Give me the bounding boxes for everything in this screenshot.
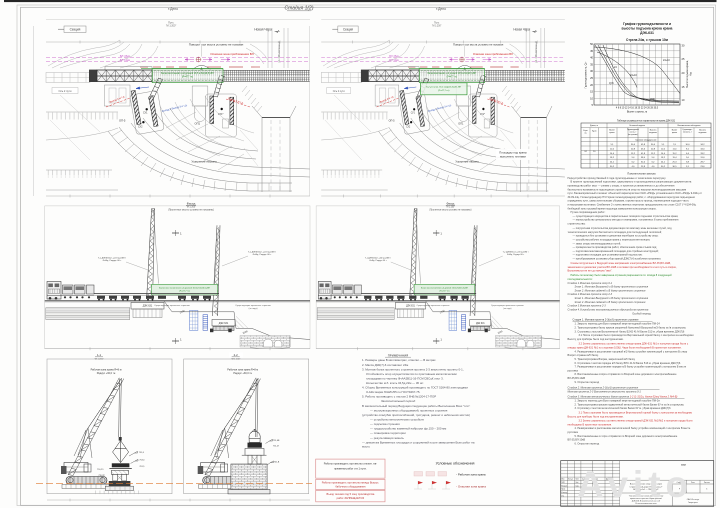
svg-text:Фасад: Фасад <box>187 202 196 206</box>
svg-text:751,6: 751,6 <box>139 452 145 454</box>
svg-text:2. Масса ДЭК(7)-6 составляе: 2. Масса ДЭК(7)-6 составляет 24м <box>362 363 408 367</box>
svg-text:Avito: Avito <box>577 464 693 505</box>
svg-text:"М 1:200": "М 1:200" <box>94 358 104 360</box>
svg-text:Утв: Утв <box>561 495 564 497</box>
svg-text:мосту: мосту <box>362 445 370 449</box>
svg-text:— демонтаж Временных площад: — демонтаж Временных площадок и сооружен… <box>362 440 475 444</box>
svg-text:— устройство металлических: — устройство металлических устройств <box>370 417 424 421</box>
svg-text:Балки восстановления к-й длино: Балки восстановления к-й длиной 16,5м Б2… <box>159 287 211 290</box>
svg-text:Въезд техники под 5 зону: Въезд техники под 5 зону производства <box>326 492 374 496</box>
svg-text:Кол.уч: Кол.уч <box>568 479 573 481</box>
svg-text:741,В: 741,В <box>274 462 280 464</box>
svg-text:4. Разворачивал в расстановке: 4. Разворачивал в расстановке металличес… <box>575 426 691 430</box>
svg-text:7. Разворачивал в расстановке: 7. Разворачивал в расстановке порядке в/… <box>575 364 687 368</box>
svg-text:5. Восстановленные в торге от: 5. Восстановленные в торге отправили по … <box>575 434 678 438</box>
svg-text:(по гранич.): (по гранич.) <box>628 134 639 136</box>
svg-text:4. Сборку Временных констру: 4. Сборку Временных конструкций производ… <box>362 385 468 389</box>
svg-text:(Пролетные мосты условно не по: (Пролетные мосты условно не показаны) <box>168 209 214 212</box>
svg-text:— планировка территории: — планировка территории <box>370 431 406 435</box>
svg-text:Гусек: Гусек <box>592 131 597 133</box>
svg-text:Новая Чара: Новая Чара <box>254 27 272 31</box>
svg-text:ДЭК: ДЭК <box>650 98 655 101</box>
svg-text:Особый период: Особый период <box>632 312 651 316</box>
svg-text:подъема: подъема <box>649 132 658 134</box>
svg-text:ДЭК-631: ДЭК-631 <box>640 31 654 35</box>
svg-text:Вспомогательный подъем: Вспомогательный подъем <box>678 124 702 127</box>
svg-text:5. Работы производить с ли: 5. Работы производить с листом 2 ФчВ.№12… <box>362 394 436 398</box>
svg-text:Q=6: Q=6 <box>609 82 614 85</box>
svg-text:ОП-5: ОП-5 <box>119 118 126 122</box>
svg-text:Заключительный период: Заключительный период <box>381 399 416 403</box>
svg-text:— переустройство центрального: — переустройство центрального метода и п… <box>573 217 679 221</box>
svg-text:Балки восстановл. к-й длиной 1: Балки восстановл. к-й длиной 16,5 м Б2(1… <box>161 72 214 75</box>
svg-text:Основной подъем: Основной подъем <box>629 124 646 127</box>
svg-text:ОП1: ОП1 <box>195 122 201 126</box>
svg-text:— трудоустройство каменной: — трудоустройство каменной наброски фр.1… <box>370 426 446 430</box>
svg-text:площадкам по чертежу ФчАА2В: площадкам по чертежу ФчАА2В11-16-ПОУ/СВС… <box>366 376 444 380</box>
svg-text:ДЭК 631: ДЭК 631 <box>219 322 229 325</box>
svg-text:Поворот оси моста условно не п: Поворот оси моста условно не показан <box>189 42 244 46</box>
svg-text:Монтаж пролета 2-3 Выполняется: Монтаж пролета 2-3 Выполняется аналогичн… <box>568 389 642 393</box>
svg-text:761,5: 761,5 <box>139 466 145 468</box>
svg-text:Существующие пролетные строени: Существующие пролетные строения <box>154 305 190 307</box>
svg-text:Разраб: Разраб <box>561 485 567 487</box>
svg-text:т.Депо: т.Депо <box>168 7 178 11</box>
svg-text:- Рабочая зона крана: - Рабочая зона крана <box>456 473 486 477</box>
svg-text:6: 6 <box>706 489 707 491</box>
svg-text:Пров: Пров <box>561 489 565 491</box>
svg-text:(устройство опалубки приспос: (устройство опалубки приспособлений, тро… <box>362 413 470 417</box>
svg-text:Высоту для приборы были под ин: Высоту для приборы были под инструментам… <box>568 337 624 341</box>
svg-text:В заключительный период Вед: В заключительный период Ведущая следующи… <box>362 404 471 408</box>
svg-text:24+10: 24+10 <box>630 74 637 77</box>
svg-text:751,6В: 751,6В <box>273 440 280 442</box>
svg-text:Т-к ДЭК631м L=24 Q=24М т: Т-к ДЭК631м L=24 Q=24М т <box>248 251 276 253</box>
svg-text:высоты подъема крюка крана: высоты подъема крюка крана <box>622 27 673 31</box>
svg-text:Вылет стрелы, м: Вылет стрелы, м <box>627 109 647 113</box>
svg-text:Уширение насыпи: Уширение насыпи <box>191 160 217 164</box>
svg-text:753,0: 753,0 <box>139 460 145 462</box>
svg-text:Стрела 24м, с гуськом 10м: Стрела 24м, с гуськом 10м <box>626 38 669 42</box>
svg-text:(на годы): (на годы) <box>249 308 258 310</box>
svg-text:3. Монтаж балок пролетного: 3. Монтаж балок пролетного строения прол… <box>362 367 464 371</box>
svg-text:Ф=Вр, Радиус 60 т: Ф=Вр, Радиус 60 т <box>253 253 272 256</box>
svg-text:24+10: 24+10 <box>663 59 670 62</box>
svg-text:Устойчивость опор осуществля: Устойчивость опор осуществляется по прис… <box>366 372 457 376</box>
svg-text:2-2: 2-2 <box>234 353 238 357</box>
svg-text:Кольичество м.б. клеть 34,5: Кольичество м.б. клеть 34,5д,22м — 36 шт… <box>366 381 424 385</box>
svg-text:- Опасная зона крана: - Опасная зона крана <box>456 485 486 489</box>
svg-text:Таблица грузовысотных характер: Таблица грузовысотных характеристик кран… <box>617 121 676 123</box>
svg-text:Б-2 установ. Всё вмф(16,5)-В1-: Б-2 установ. Всё вмф(16,5)-В1-ВП <box>426 86 461 89</box>
svg-text:6. Открытие переезд: 6. Открытие переезд <box>575 441 600 445</box>
svg-text:— подсыпка строения: — подсыпка строения <box>370 422 400 426</box>
svg-text:подъема: подъема <box>699 132 708 134</box>
svg-text:Работы производить при жест: Работы производить при жестко между Выгр… <box>322 481 380 485</box>
svg-text:График грузоподъемности и: График грузоподъемности и <box>623 22 671 26</box>
svg-text:СУ1: СУ1 <box>143 112 148 115</box>
svg-text:1-1: 1-1 <box>97 353 101 357</box>
svg-text:СУ2: СУ2 <box>138 126 143 129</box>
svg-text:Длина, м: Длина, м <box>590 125 599 127</box>
svg-text:бабочного оборудования: бабочного оборудования <box>335 484 366 488</box>
svg-text:(Р=47,7 тн): (Р=47,7 тн) <box>179 291 190 293</box>
svg-text:751,2Г: 751,2Г <box>273 446 280 448</box>
svg-text:З-А2Н марки ЮНИ1/55 по ГОС: З-А2Н марки ЮНИ1/55 по ГОСТ9467-75. <box>366 390 421 394</box>
svg-text:— рекультивация земель: — рекультивация земель <box>370 436 404 440</box>
svg-text:Н,м: Н,м <box>690 72 693 77</box>
svg-text:работ ЗАПРЕЩАЕТСЯ: работ ЗАПРЕЩАЕТСЯ <box>337 496 365 500</box>
svg-text:1. Размеры даны В миллимет: 1. Размеры даны В миллиметрах, отметки —… <box>362 358 436 362</box>
svg-text:Секция: Секция <box>70 28 81 32</box>
svg-text:8. Восстановленные вторге отп: 8. Восстановленные вторге отправили по В… <box>575 372 677 376</box>
svg-text:9. Открытие переезд: 9. Открытие переезд <box>575 380 600 384</box>
svg-text:ул. Объявленный: ул. Объявленный <box>277 41 281 63</box>
svg-text:Т-к ДЭК631м L=24 Q=24М т: Т-к ДЭК631м L=24 Q=24М т <box>98 257 126 259</box>
svg-text:Грузовое оборудование: Грузовое оборудование <box>636 139 657 141</box>
svg-text:750,29: 750,29 <box>97 469 104 471</box>
svg-text:4 6 8 10 12 14 16 18 2: 4 6 8 10 12 14 16 18 20 22 24 26 28 30,5 <box>616 108 659 110</box>
svg-text:Радиус +30,0 тн: Радиус +30,0 тн <box>97 372 116 375</box>
svg-text:— эксплуатационных обо: — эксплуатационных оборудований, проектн… <box>370 408 448 412</box>
svg-text:Ф=Вр, Радиус 60 т: Ф=Вр, Радиус 60 т <box>103 259 122 262</box>
svg-text:Опасная зона приближения ВЛ: Опасная зона приближения ВЛ <box>210 52 253 56</box>
svg-text:(Р=477 тн): (Р=477 тн) <box>182 77 193 79</box>
svg-text:ВЛ 10кв: ВЛ 10кв <box>120 58 131 62</box>
svg-text:емность, т: емность, т <box>683 131 692 133</box>
svg-text:выполнить плитами: выполнить плитами <box>500 154 526 158</box>
svg-text:Н.контр: Н.контр <box>561 492 567 494</box>
svg-text:т.Депо: т.Депо <box>436 7 446 11</box>
svg-text:"М 1:200": "М 1:200" <box>166 25 176 28</box>
svg-text:Работы производить при жест: Работы производить при жестко отключ. на… <box>324 462 377 466</box>
svg-text:ПРИМЕЧАНИЯ: ПРИМЕЧАНИЯ <box>388 353 409 357</box>
svg-text:739,2Р: 739,2Р <box>98 475 105 477</box>
svg-text:пряжении работ и в 1 пути: пряжении работ и в 1 пути. <box>334 467 367 471</box>
svg-text:(Р=47,7 тн): (Р=47,7 тн) <box>438 90 450 92</box>
svg-text:Грузоподъемность, Q,т: Грузоподъемность, Q,т <box>585 61 588 89</box>
svg-text:ДЭК 631: ДЭК 631 <box>143 305 153 308</box>
svg-text:Условные обозначения: Условные обозначения <box>436 461 475 465</box>
svg-text:Листов: Листов <box>704 482 710 484</box>
svg-text:Ось 2 пути: Ось 2 пути <box>59 89 72 93</box>
